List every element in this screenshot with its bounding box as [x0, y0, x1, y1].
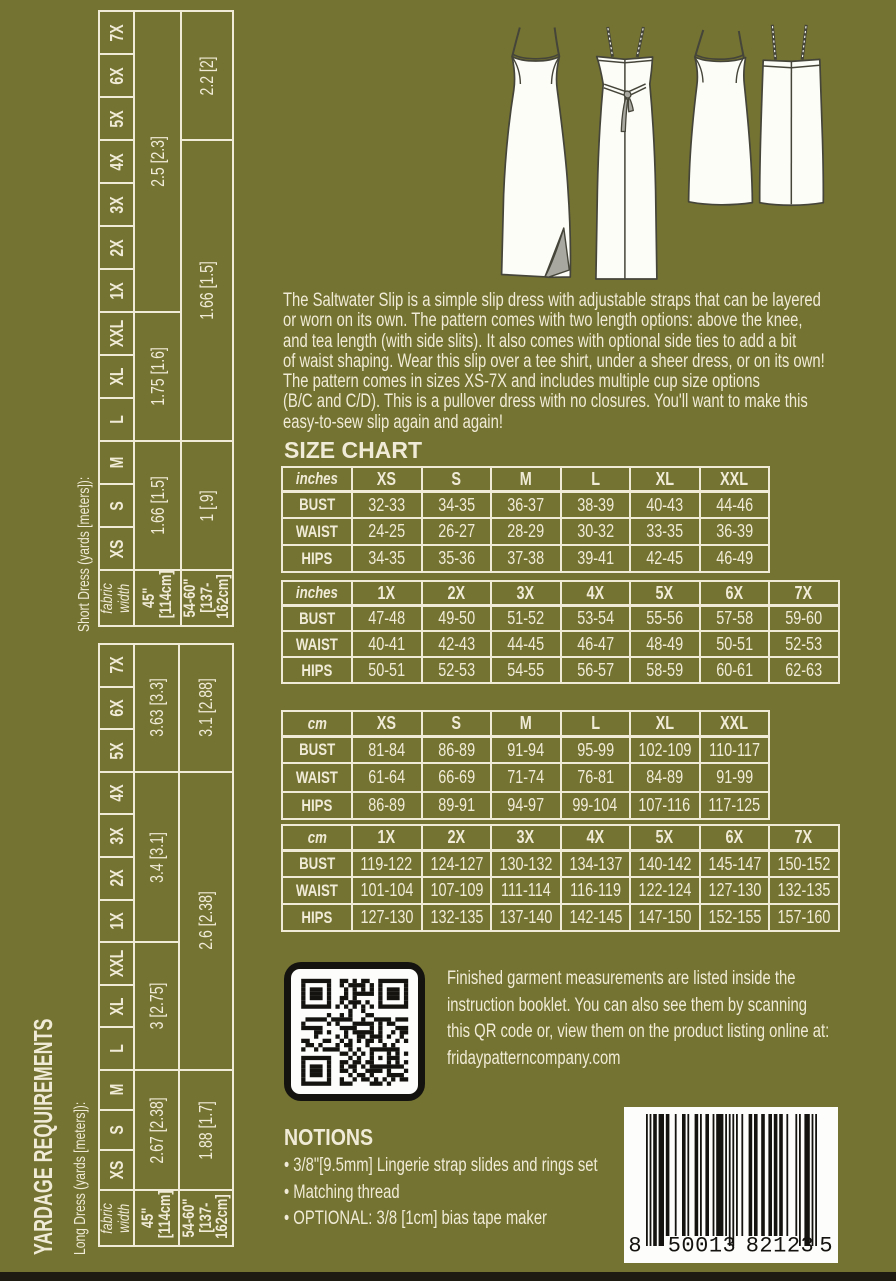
svg-text:5: 5: [819, 1234, 832, 1259]
svg-text:8: 8: [628, 1234, 641, 1259]
svg-text:50013: 50013: [668, 1234, 737, 1259]
svg-text:82123: 82123: [746, 1234, 815, 1259]
